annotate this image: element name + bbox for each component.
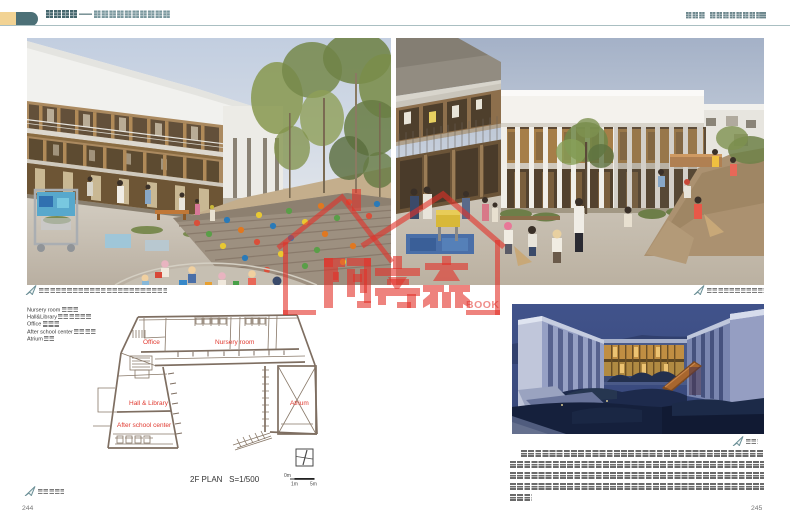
svg-text:Office: Office xyxy=(143,339,160,346)
svg-text:Nursery room: Nursery room xyxy=(215,339,254,346)
svg-text:5m: 5m xyxy=(310,482,317,487)
svg-text:BOOK: BOOK xyxy=(466,299,500,311)
svg-text:After school center: After school center xyxy=(117,422,172,429)
svg-text:Atrium: Atrium xyxy=(290,400,309,407)
svg-text:0m: 0m xyxy=(284,473,291,479)
svg-text:1m: 1m xyxy=(291,482,298,487)
svg-text:Hall & Library: Hall & Library xyxy=(129,400,169,407)
